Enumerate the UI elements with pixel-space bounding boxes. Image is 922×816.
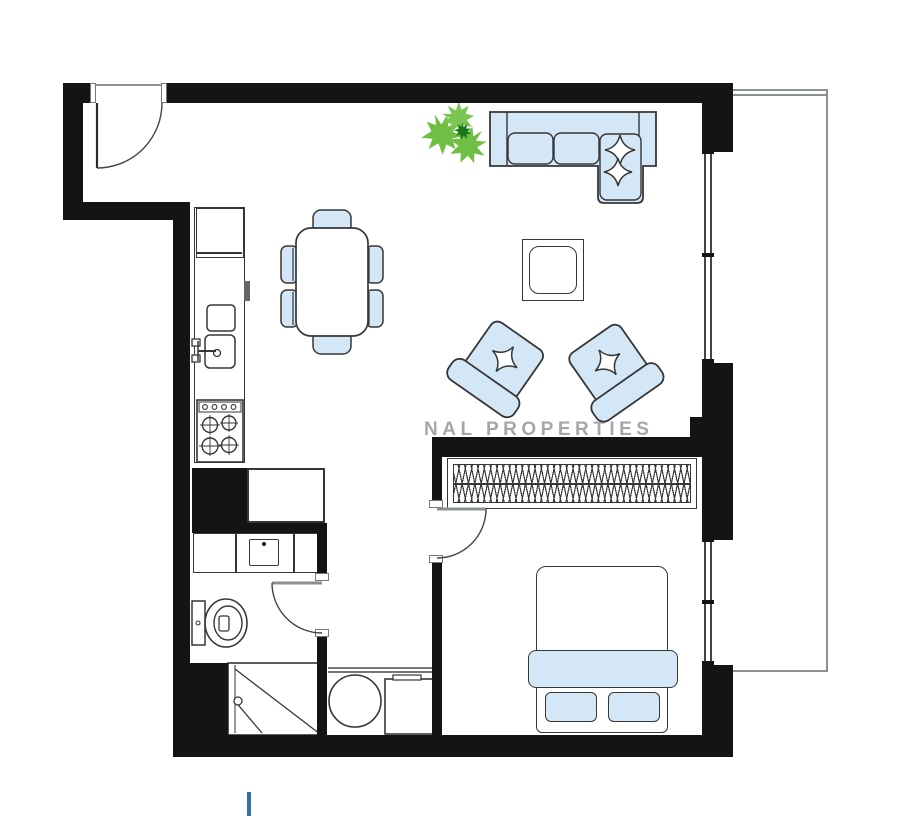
stove: [195, 395, 247, 467]
utility-closet-door-line: [328, 667, 432, 669]
entry-door: [90, 80, 170, 175]
wall-top: [163, 83, 733, 103]
plant-icon: [418, 102, 496, 180]
refrigerator: [196, 208, 244, 258]
balcony-railing-top: [733, 89, 827, 91]
text-cursor-mark: [247, 792, 251, 816]
window-mullion-tick: [702, 600, 714, 604]
bed-pillow: [608, 692, 660, 722]
water-heater-cabinet: [385, 679, 433, 734]
window-mullion-tick: [702, 359, 714, 363]
wall-right-bottom: [702, 665, 733, 757]
wall-right-top: [702, 83, 733, 152]
bed-pillow: [545, 692, 597, 722]
dining-set: [278, 204, 384, 358]
utility-appliances: [325, 668, 440, 740]
counter-line: [197, 252, 242, 254]
vanity-divider: [235, 533, 237, 573]
washing-machine: [329, 675, 381, 727]
balcony-railing-bottom: [733, 670, 828, 672]
window-mullion-tick: [702, 661, 714, 665]
wall-bath-top-bar: [192, 523, 327, 533]
wall-bath-east-upper: [317, 523, 327, 580]
vanity-divider: [293, 533, 295, 573]
counter-handle: [244, 281, 250, 301]
armchair-right: [572, 327, 662, 422]
balcony-railing-top: [733, 94, 827, 96]
faucet-icon: [192, 355, 200, 362]
wall-bath-east-lower: [317, 631, 327, 735]
wall-bath-sw-block: [178, 663, 228, 735]
wall-divider-junction: [690, 417, 704, 457]
window-glass-line: [710, 152, 712, 363]
coffee-table-top: [529, 246, 577, 294]
window-mullion-tick: [702, 538, 714, 542]
wall-entry-south: [63, 202, 190, 220]
sofa: [488, 110, 660, 210]
balcony-railing-right: [826, 89, 828, 672]
toilet: [190, 595, 252, 653]
wall-bedroom-divider: [432, 437, 733, 457]
wall-left: [63, 83, 83, 220]
wall-bath-block: [192, 468, 247, 525]
shower-knob-icon: [234, 697, 242, 705]
bedroom-door: [429, 499, 501, 571]
bathroom-door: [263, 573, 335, 645]
shower: [226, 661, 326, 739]
floor-plan: NAL PROPERTIES: [0, 0, 922, 816]
window-glass-line: [704, 152, 706, 363]
hall-closet: [247, 468, 325, 523]
armchair-left: [452, 325, 542, 420]
faucet-icon: [192, 339, 200, 346]
basin-tap-icon: [262, 542, 266, 546]
utility-closet-door-line: [328, 671, 432, 673]
bed-blanket: [528, 650, 678, 688]
wardrobe-rail-line: [453, 483, 691, 485]
dining-table: [296, 228, 368, 336]
kitchen-sink: [186, 295, 252, 380]
wall-bedroom-west-lower: [432, 557, 442, 735]
window-mullion-tick: [702, 253, 714, 257]
wall-bottom: [173, 735, 733, 757]
window-mullion-tick: [702, 150, 714, 154]
